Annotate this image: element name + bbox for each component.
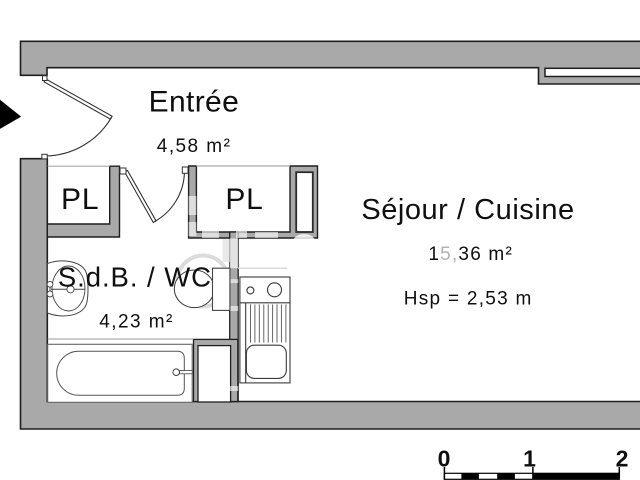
svg-text:2: 2 [616,446,629,472]
svg-text:1: 1 [523,446,536,472]
svg-text:Entrée: Entrée [149,86,240,119]
svg-text:0: 0 [438,446,451,472]
svg-text:S.d.B. / WC: S.d.B. / WC [58,262,212,293]
svg-text:Séjour / Cuisine: Séjour / Cuisine [361,194,574,226]
svg-text:15,36 m²: 15,36 m² [428,244,513,265]
svg-text:4,58 m²: 4,58 m² [157,136,232,157]
svg-text:PL: PL [225,183,263,216]
svg-text:Hsp = 2,53 m: Hsp = 2,53 m [404,289,533,310]
svg-text:4,23 m²: 4,23 m² [99,312,174,333]
svg-text:PL: PL [61,183,99,216]
